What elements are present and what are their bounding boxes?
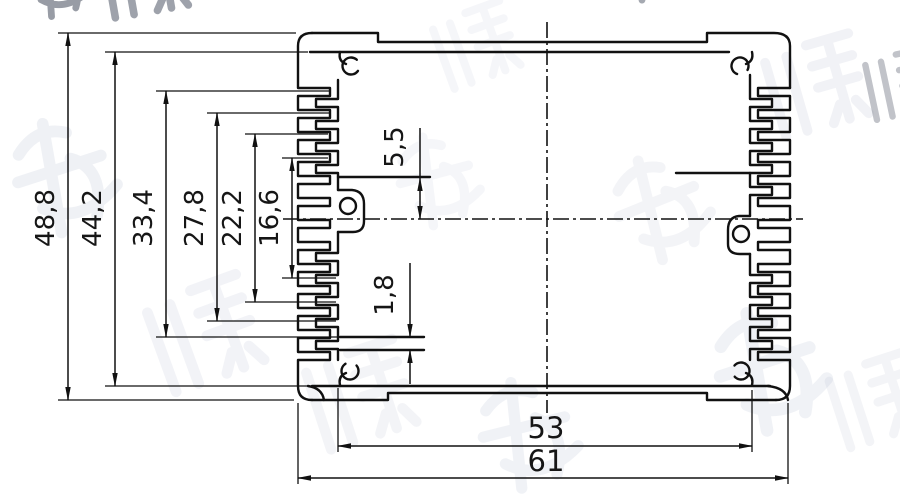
right-screw-boss-hole — [733, 226, 749, 242]
dim-label-27-8: 27,8 — [180, 189, 210, 247]
dim-label-overall-height: 48,8 — [31, 189, 61, 247]
dim-label-inner-height: 44,2 — [78, 189, 108, 247]
top-wall-outer — [312, 33, 790, 88]
screw-clip-top-left-hook — [340, 52, 346, 64]
dim-label-inner-width: 53 — [528, 411, 565, 445]
right-screw-boss-body — [728, 216, 750, 254]
drawing-page: 48,8 44,2 33,4 27,8 22,2 16,6 5,5 1,8 53… — [0, 0, 900, 500]
screw-clip-top-left — [339, 54, 363, 78]
dim-label-22-2: 22,2 — [218, 189, 248, 247]
technical-drawing-canvas: 48,8 44,2 33,4 27,8 22,2 16,6 5,5 1,8 53… — [0, 0, 900, 500]
extension-lines — [58, 33, 788, 484]
dim-label-16-6: 16,6 — [255, 189, 285, 247]
dim-label-outer-width: 61 — [528, 444, 565, 478]
left-screw-boss-hole — [340, 198, 356, 214]
dim-label-1-8: 1,8 — [370, 274, 400, 315]
dim-label-33-4: 33,4 — [129, 189, 159, 247]
dim-label-5-5: 5,5 — [380, 126, 410, 167]
screw-clip-top-right — [729, 55, 751, 77]
left-wall-fins-outer — [298, 33, 330, 400]
